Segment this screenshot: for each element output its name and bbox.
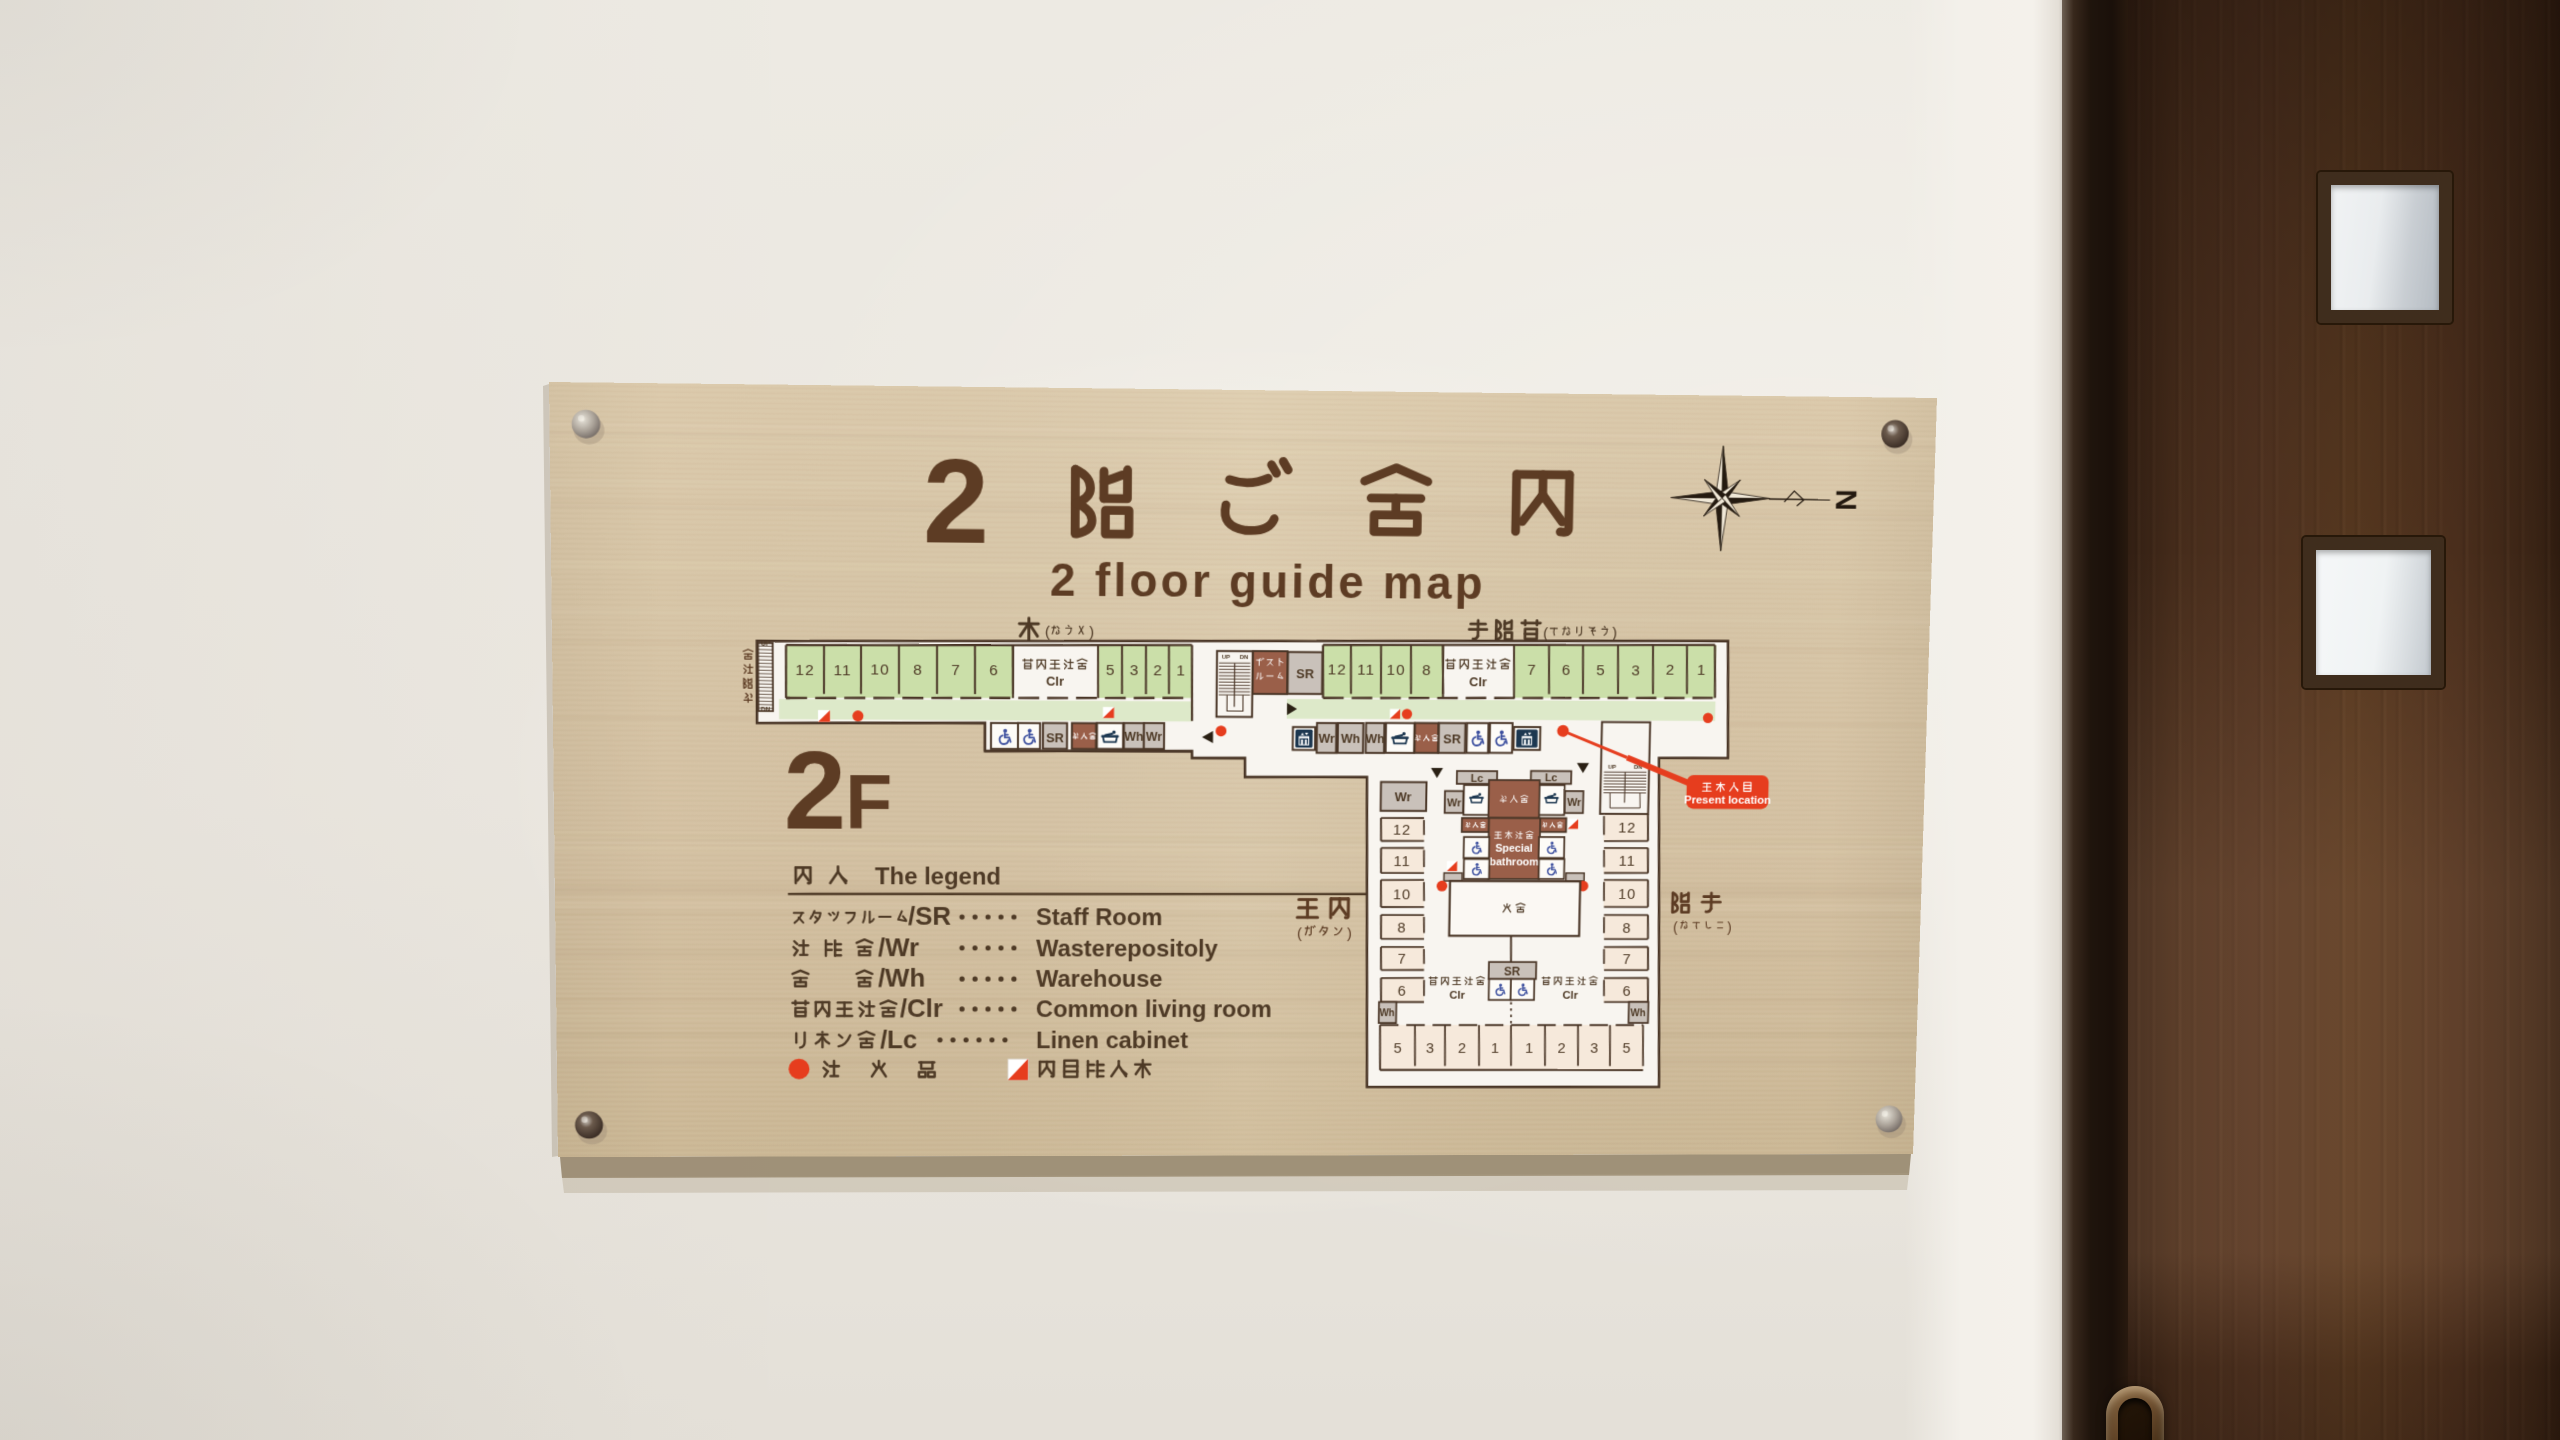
svg-text:bathroom: bathroom [1489, 856, 1539, 867]
svg-text:Present location: Present location [1684, 793, 1771, 807]
svg-text:5: 5 [1393, 1041, 1401, 1057]
svg-text:Common living room: Common living room [1036, 997, 1272, 1023]
svg-text:Clr: Clr [1449, 989, 1465, 1002]
svg-text:2: 2 [1458, 1041, 1466, 1057]
svg-text:3: 3 [1590, 1041, 1598, 1057]
svg-text:1: 1 [1697, 662, 1706, 679]
svg-text:Warehouse: Warehouse [1036, 967, 1163, 993]
svg-text:Wr: Wr [1567, 797, 1582, 808]
svg-text:7: 7 [1527, 662, 1536, 679]
svg-text:Wr: Wr [1395, 790, 1413, 804]
svg-text:5: 5 [1622, 1041, 1630, 1057]
svg-text:SR: SR [1296, 666, 1314, 680]
svg-text:1: 1 [1491, 1041, 1499, 1057]
svg-text:Wh: Wh [1124, 729, 1143, 743]
svg-text:6: 6 [989, 661, 999, 678]
svg-text:2 floor guide map: 2 floor guide map [1050, 555, 1486, 610]
svg-text:Lc: Lc [1471, 773, 1484, 784]
svg-text:10: 10 [1386, 662, 1405, 679]
svg-text:2: 2 [1666, 662, 1675, 679]
svg-text:10: 10 [1393, 887, 1411, 903]
svg-text:/Wr: /Wr [878, 933, 920, 962]
svg-text:11: 11 [1393, 854, 1410, 870]
svg-text:UP: UP [1608, 764, 1616, 771]
svg-text:12: 12 [1618, 821, 1637, 837]
svg-text:/Clr: /Clr [900, 994, 943, 1022]
svg-text:7: 7 [1622, 952, 1631, 968]
svg-text:6: 6 [1562, 662, 1571, 679]
svg-text:Wr: Wr [1447, 797, 1462, 808]
svg-text:12: 12 [1393, 823, 1412, 839]
svg-text:Wr: Wr [1318, 732, 1334, 746]
svg-text:1: 1 [1525, 1041, 1533, 1057]
svg-text:UP: UP [1222, 654, 1230, 661]
svg-text:10: 10 [1618, 887, 1636, 903]
svg-text:11: 11 [1357, 662, 1375, 679]
svg-text:11: 11 [833, 661, 851, 679]
svg-text:Wh: Wh [1630, 1009, 1645, 1019]
svg-text:(: ( [1673, 921, 1678, 936]
svg-text:8: 8 [1422, 662, 1432, 679]
svg-text:3: 3 [1631, 662, 1640, 679]
svg-text:The legend: The legend [875, 864, 1001, 890]
svg-text:Staff Room: Staff Room [1036, 905, 1162, 931]
svg-text:5: 5 [1596, 662, 1605, 679]
svg-text:Clr: Clr [1562, 989, 1578, 1002]
svg-text:SR: SR [1046, 730, 1064, 744]
svg-text:6: 6 [1622, 983, 1631, 999]
svg-text:1: 1 [1176, 662, 1185, 679]
svg-text:/SR: /SR [908, 902, 951, 931]
svg-text:8: 8 [1397, 920, 1406, 936]
svg-text:SR: SR [1504, 965, 1520, 978]
svg-text:Wh: Wh [1379, 1008, 1394, 1018]
svg-text:3: 3 [1130, 662, 1139, 679]
svg-text:(: ( [1045, 624, 1051, 640]
svg-text:Wasterepositoly: Wasterepositoly [1036, 936, 1218, 962]
svg-text:DN: DN [1240, 654, 1249, 661]
svg-text:7: 7 [1397, 952, 1406, 968]
svg-text:2: 2 [1557, 1041, 1565, 1057]
svg-text:DN: DN [761, 707, 771, 714]
svg-text:Clr: Clr [1046, 674, 1065, 689]
svg-text:): ) [1727, 921, 1732, 936]
svg-text:Lc: Lc [1545, 773, 1558, 784]
svg-text:): ) [1089, 624, 1094, 640]
svg-text:Linen cabinet: Linen cabinet [1036, 1028, 1188, 1053]
svg-text:Wr: Wr [1146, 730, 1162, 744]
svg-text:2: 2 [1153, 662, 1162, 679]
svg-text:12: 12 [795, 661, 814, 679]
svg-text:N: N [1829, 489, 1863, 511]
svg-text:11: 11 [1618, 854, 1635, 870]
svg-text:3: 3 [1426, 1041, 1434, 1057]
svg-text:UP: UP [761, 641, 771, 648]
svg-text:SR: SR [1443, 732, 1461, 746]
svg-text:12: 12 [1328, 661, 1347, 678]
svg-text:10: 10 [870, 661, 889, 679]
svg-text:5: 5 [1106, 661, 1115, 678]
svg-text:Clr: Clr [1469, 674, 1488, 688]
svg-text:): ) [1347, 926, 1352, 942]
svg-text:7: 7 [951, 661, 961, 678]
svg-text:8: 8 [1622, 920, 1631, 936]
svg-text:Wh: Wh [1341, 731, 1360, 745]
svg-text:/Lc: /Lc [880, 1025, 917, 1053]
svg-text:/Wh: /Wh [878, 964, 925, 992]
svg-text:2: 2 [783, 728, 846, 853]
svg-text:8: 8 [913, 661, 923, 678]
svg-text:6: 6 [1397, 983, 1406, 999]
svg-text:2: 2 [923, 434, 989, 568]
svg-text:): ) [1612, 626, 1617, 642]
svg-text:Special: Special [1495, 843, 1533, 854]
svg-text:Wh: Wh [1365, 731, 1384, 745]
svg-text:F: F [845, 760, 892, 845]
